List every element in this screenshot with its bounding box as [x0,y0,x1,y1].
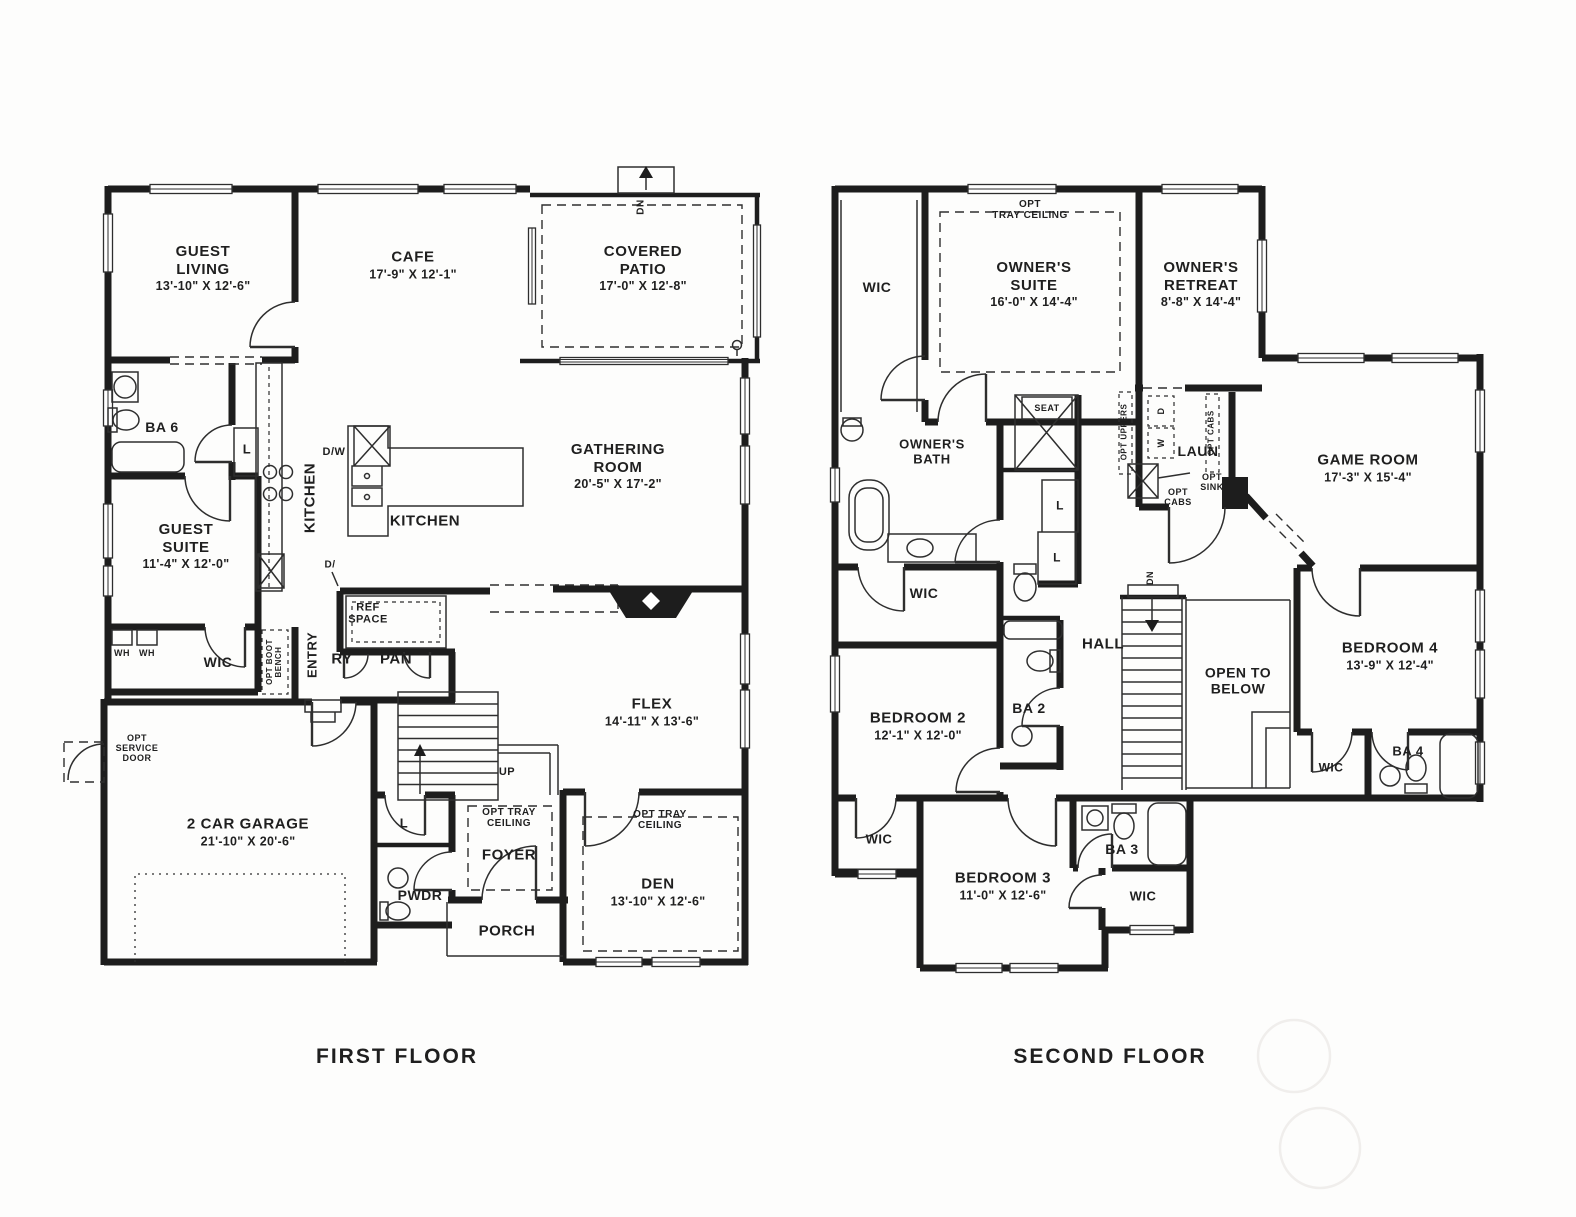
room-label-owners-bath: OWNER'S BATH [899,437,965,468]
wic-owner-top-label: WIC [863,280,892,296]
opt-sink-label: OPT SINK [1200,472,1224,492]
ba2-label: BA 2 [1012,701,1045,717]
room-label-guest-suite: GUEST SUITE 11'-4" X 12'-0" [143,521,230,571]
patio-dn-label: DN [635,199,646,214]
second-floor-windows [831,185,1485,973]
closet-label-3: L [1056,499,1064,512]
ba3-label: BA 3 [1105,842,1138,858]
first-floor-windows [104,185,761,967]
stairs-dn-label: DN [1145,571,1155,585]
opt-service-door-label: OPT SERVICE DOOR [116,733,159,763]
opt-uppers-label: OPT UPPERS [1121,404,1130,461]
first-floor-title: FIRST FLOOR [316,1045,478,1069]
foyer-label: FOYER [482,848,536,865]
kitchen-island-label: KITCHEN [390,514,460,531]
second-floor-plan [831,185,1485,973]
ba4-label: BA 4 [1392,745,1423,760]
room-label-covered-patio: COVERED PATIO 17'-0" X 12'-8" [599,243,687,293]
room-label-owners-suite: OWNER'S SUITE 16'-0" X 14'-4" [990,259,1078,309]
wic-b4-label: WIC [1319,761,1344,774]
den-tray-label: OPT TRAY CEILING [633,809,687,831]
room-label-garage: 2 CAR GARAGE 21'-10" X 20'-6" [187,816,309,849]
pantry-label-b: PAN [380,652,412,669]
first-floor-dashed [64,205,742,951]
room-label-guest-living: GUEST LIVING 13'-10" X 12'-6" [156,243,251,293]
kitchen-wall-label: KITCHEN [303,463,320,533]
closet-label-2: L [400,817,408,832]
washer-label: W [1156,439,1166,448]
dryer-label: D [1156,408,1166,415]
room-label-bedroom3: BEDROOM 3 11'-0" X 12'-6" [955,870,1051,903]
room-label-gathering: GATHERING ROOM 20'-5" X 17'-2" [571,441,665,491]
open-to-below-label: OPEN TO BELOW [1205,665,1271,696]
room-label-bedroom2: BEDROOM 2 12'-1" X 12'-0" [870,710,966,743]
room-label-den: DEN 13'-10" X 12'-6" [611,876,706,909]
up-label: UP [499,766,515,778]
room-label-owners-retreat: OWNER'S RETREAT 8'-8" X 14'-4" [1161,259,1241,309]
opt-cabs-vert-label: OPT CABS [1208,410,1217,455]
ref-space-label: REF SPACE [348,602,388,627]
wic-b2-label: WIC [866,833,893,848]
second-floor-title: SECOND FLOOR [1013,1045,1206,1069]
pwdr-label: PWDR [398,888,443,904]
foyer-tray-label: OPT TRAY CEILING [482,807,536,829]
pantry-label-a: RY [331,652,352,669]
room-label-bedroom4: BEDROOM 4 13'-9" X 12'-4" [1342,640,1438,673]
second-floor-walls [835,186,1480,968]
seat-label: SEAT [1034,403,1059,413]
ba6-label: BA 6 [145,420,178,436]
room-label-game-room: GAME ROOM 17'-3" X 15'-4" [1317,452,1418,485]
dw2-label: D/ [325,559,336,570]
closet-label-4: L [1053,551,1061,564]
room-label-flex: FLEX 14'-11" X 13'-6" [605,696,699,729]
wic-label-f1: WIC [204,655,233,671]
floorplan-page: GUEST LIVING 13'-10" X 12'-6" CAFE 17'-9… [0,0,1576,1217]
dw-label: D/W [323,446,346,458]
floorplan-drawing [0,0,1576,1217]
watermark-circles [1258,1020,1360,1188]
entry-label: ENTRY [306,632,321,678]
closet-label-1: L [243,443,251,458]
wic-owner-label: WIC [910,586,939,602]
suite-tray-label: OPT TRAY CEILING [992,199,1067,221]
porch-label: PORCH [479,924,536,941]
wic-b3-label: WIC [1130,890,1157,905]
opt-boot-bench-label: OPT BOOT BENCH [266,639,284,685]
hall-label: HALL [1082,637,1124,654]
room-label-cafe: CAFE 17'-9" X 12'-1" [369,249,457,282]
opt-cabs-label: OPT CABS [1164,487,1192,507]
wh-label-2: WH [139,648,155,658]
wh-label-1: WH [114,648,130,658]
